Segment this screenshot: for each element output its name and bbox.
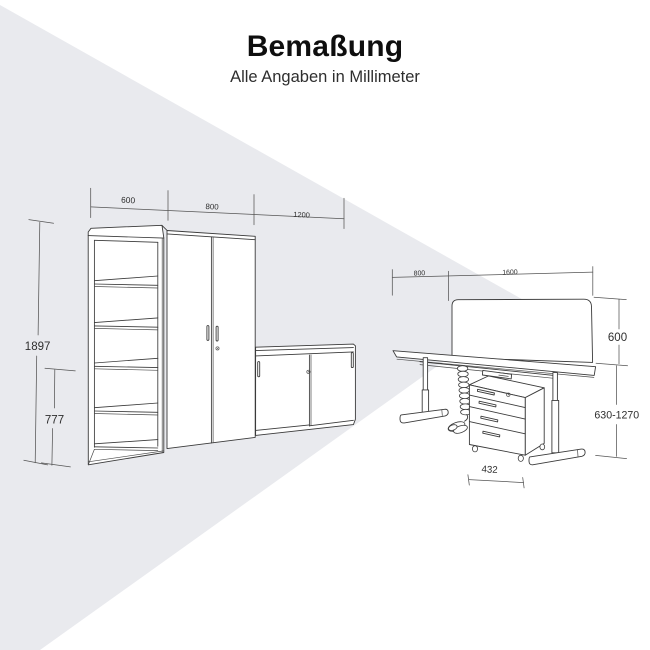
- dim-label-wardrobe-width: 800: [205, 202, 219, 212]
- dimension-diagram-page: 600 800 1200 1897 777 800 1600: [0, 0, 650, 650]
- pedestal-caster: [472, 446, 477, 452]
- dim-label-pedestal-width: 432: [481, 464, 498, 476]
- sideboard-handle-left: [258, 362, 260, 377]
- sideboard-drawing: [256, 344, 356, 435]
- cable-spiral: [447, 366, 471, 435]
- dim-label-desk-depth: 800: [414, 270, 426, 277]
- dimension-diagram: 600 800 1200 1897 777 800 1600: [0, 0, 650, 650]
- pedestal-caster: [540, 444, 545, 450]
- dim-label-shelf-width: 600: [121, 195, 136, 206]
- wardrobe-handle-left: [207, 326, 209, 341]
- drawer-pedestal: [469, 376, 544, 462]
- dim-label-desk-width: 1600: [502, 269, 518, 276]
- wardrobe-drawing: [167, 231, 255, 449]
- bookshelf-drawing: [88, 225, 167, 464]
- sideboard-handle-right: [351, 353, 353, 368]
- dim-label-total-height: 1897: [25, 341, 51, 353]
- dim-label-screen-height: 600: [608, 332, 627, 344]
- dim-label-sideboard-width: 1200: [293, 210, 310, 220]
- dim-label-desk-height-range: 630-1270: [594, 409, 639, 421]
- desk-screen: [452, 299, 593, 362]
- wardrobe-handle-right: [216, 326, 218, 341]
- dim-label-sideboard-height: 777: [45, 415, 64, 427]
- background-wedge: [0, 5, 527, 650]
- pedestal-caster: [518, 455, 523, 461]
